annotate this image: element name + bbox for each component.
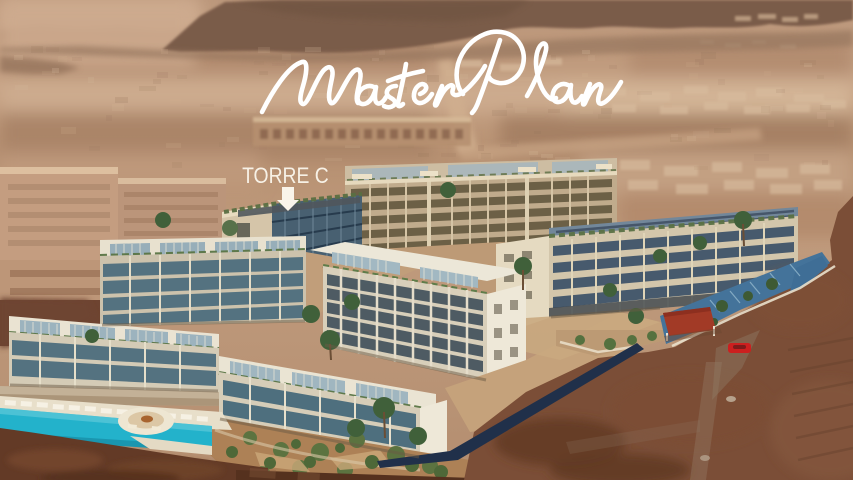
svg-text:TORRE C: TORRE C — [242, 164, 329, 189]
